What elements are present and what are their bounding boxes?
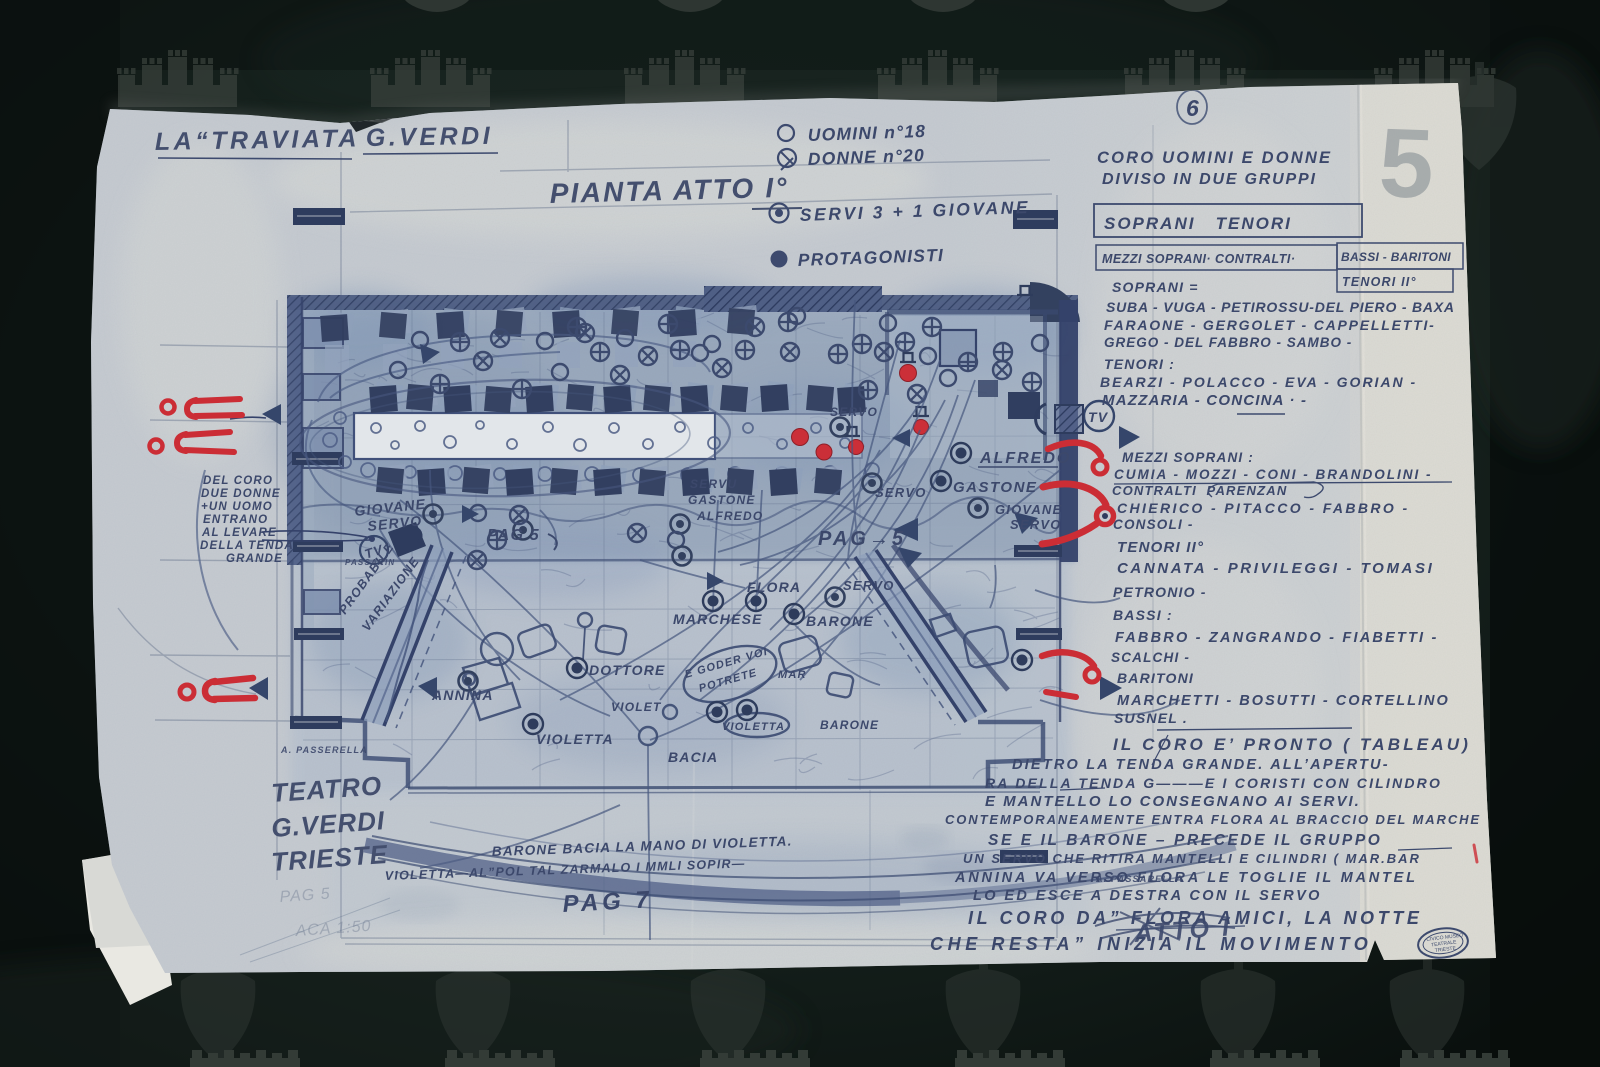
svg-text:GREGO - DEL FABBRO - SAMBO -: GREGO - DEL FABBRO - SAMBO - bbox=[1104, 335, 1352, 350]
svg-text:ANNINA VA VERSO FLORA LE TOGLI: ANNINA VA VERSO FLORA LE TOGLIE IL MANTE… bbox=[954, 870, 1418, 886]
svg-text:SUBA - VUGA - PETIROSSU-DEL PI: SUBA - VUGA - PETIROSSU-DEL PIERO - BAXA bbox=[1106, 299, 1455, 315]
svg-text:TV: TV bbox=[1088, 409, 1109, 425]
svg-text:FLORA: FLORA bbox=[747, 579, 801, 595]
svg-text:ENTRANO: ENTRANO bbox=[203, 514, 268, 526]
svg-text:CHIERICO - PITACCO - FABBRO -: CHIERICO - PITACCO - FABBRO - bbox=[1117, 500, 1410, 516]
svg-text:DIETRO LA TENDA GRANDE. ALL’A: DIETRO LA TENDA GRANDE. ALL’APERTU- bbox=[1012, 757, 1390, 773]
svg-text:BARONE: BARONE bbox=[806, 613, 874, 629]
svg-text:MEZZI SOPRANI· CONTRALTI·: MEZZI SOPRANI· CONTRALTI· bbox=[1102, 252, 1296, 266]
svg-text:SERVO: SERVO bbox=[1010, 517, 1062, 532]
svg-text:TENORI :: TENORI : bbox=[1104, 356, 1175, 372]
svg-text:GASTONE: GASTONE bbox=[953, 479, 1037, 496]
svg-text:ALFREDO: ALFREDO bbox=[696, 509, 763, 523]
svg-text:SOPRANI =: SOPRANI = bbox=[1112, 279, 1199, 295]
svg-text:BARITONI: BARITONI bbox=[1117, 670, 1194, 686]
svg-text:CONSOLI -: CONSOLI - bbox=[1113, 517, 1194, 532]
svg-text:+UN UOMO: +UN UOMO bbox=[201, 501, 273, 513]
svg-text:VIOLETTA: VIOLETTA bbox=[722, 721, 785, 733]
svg-text:UN SERVO CHE RITIRA MANTELLI E: UN SERVO CHE RITIRA MANTELLI E CILINDRI … bbox=[963, 851, 1421, 866]
svg-text:SE E IL BARONE – PRECEDE IL GR: SE E IL BARONE – PRECEDE IL GRUPPO bbox=[988, 832, 1382, 849]
svg-text:MARCHESE: MARCHESE bbox=[673, 611, 763, 627]
svg-text:BEARZI - POLACCO - EVA - GORIA: BEARZI - POLACCO - EVA - GORIAN - bbox=[1100, 374, 1417, 390]
svg-text:PAG 5: PAG 5 bbox=[487, 527, 540, 544]
svg-text:RA DELLA TENDA G———E I CORISTI: RA DELLA TENDA G———E I CORISTI CON CILIN… bbox=[985, 775, 1442, 791]
svg-text:CORO UOMINI E DONNE: CORO UOMINI E DONNE bbox=[1097, 149, 1332, 167]
svg-text:BASSI - BARITONI: BASSI - BARITONI bbox=[1341, 250, 1451, 264]
svg-text:MEZZI SOPRANI :: MEZZI SOPRANI : bbox=[1122, 450, 1254, 465]
svg-text:MARCHETTI - BOSUTTI - CORTELLI: MARCHETTI - BOSUTTI - CORTELLINO bbox=[1117, 693, 1450, 709]
svg-text:SUSNEL .: SUSNEL . bbox=[1114, 710, 1188, 726]
svg-text:BASSI :: BASSI : bbox=[1113, 607, 1173, 623]
svg-text:TENORI II°: TENORI II° bbox=[1342, 275, 1417, 289]
svg-text:VIOLETTA: VIOLETTA bbox=[536, 731, 614, 747]
svg-text:BARONE: BARONE bbox=[820, 718, 879, 732]
svg-text:SERVO: SERVO bbox=[875, 485, 927, 500]
svg-text:E MANTELLO LO CONSEGNANO AI SE: E MANTELLO LO CONSEGNANO AI SERVI. bbox=[985, 793, 1361, 810]
svg-text:CONTEMPORANEAMENTE ENTRA FLORA: CONTEMPORANEAMENTE ENTRA FLORA AL BRACCI… bbox=[945, 812, 1481, 827]
svg-text:ANNINA: ANNINA bbox=[431, 687, 494, 703]
svg-text:PIANTA ATTO I°: PIANTA ATTO I° bbox=[549, 172, 789, 209]
svg-text:5: 5 bbox=[1377, 107, 1435, 219]
svg-text:AL LEVARE: AL LEVARE bbox=[201, 527, 277, 539]
svg-text:MAR: MAR bbox=[778, 669, 807, 681]
svg-text:SERVO: SERVO bbox=[830, 405, 878, 419]
svg-text:GIOVANE: GIOVANE bbox=[995, 502, 1062, 517]
svg-text:G.VERDI: G.VERDI bbox=[366, 122, 494, 152]
svg-text:CONTRALTI PARENZAN: CONTRALTI PARENZAN bbox=[1112, 483, 1287, 498]
svg-text:SERVO: SERVO bbox=[843, 578, 895, 593]
svg-text:DONNE n°20: DONNE n°20 bbox=[807, 145, 925, 169]
svg-text:FARAONE - GERGOLET - CAPPELLET: FARAONE - GERGOLET - CAPPELLETTI- bbox=[1104, 317, 1436, 333]
svg-text:MAZZARIA - CONCINA · -: MAZZARIA - CONCINA · - bbox=[1102, 392, 1307, 409]
svg-text:6: 6 bbox=[1186, 95, 1200, 121]
svg-text:A. PASSERELLA: A. PASSERELLA bbox=[280, 745, 368, 755]
svg-text:PAG 5: PAG 5 bbox=[279, 885, 331, 906]
svg-text:DUE DONNE: DUE DONNE bbox=[201, 488, 281, 500]
svg-text:FABBRO - ZANGRANDO - FIABETTI: FABBRO - ZANGRANDO - FIABETTI - bbox=[1115, 630, 1439, 646]
svg-text:LA“TRAVIATA: LA“TRAVIATA bbox=[155, 124, 361, 156]
svg-text:PETRONIO -: PETRONIO - bbox=[1113, 584, 1207, 600]
svg-text:SOPRANI TENORI: SOPRANI TENORI bbox=[1104, 214, 1292, 233]
svg-text:SERVU: SERVU bbox=[690, 477, 737, 491]
svg-text:BACIA: BACIA bbox=[668, 749, 718, 765]
svg-text:VIOLET: VIOLET bbox=[611, 700, 662, 714]
svg-text:DIVISO IN DUE GRUPPI: DIVISO IN DUE GRUPPI bbox=[1102, 171, 1317, 188]
svg-text:DOTTORE: DOTTORE bbox=[589, 662, 666, 678]
svg-text:GRANDE: GRANDE bbox=[226, 553, 283, 565]
svg-text:TENORI II°: TENORI II° bbox=[1117, 539, 1204, 556]
svg-text:ALFREDO: ALFREDO bbox=[979, 450, 1071, 467]
svg-text:CANNATA - PRIVILEGGI - TOMASI: CANNATA - PRIVILEGGI - TOMASI bbox=[1117, 560, 1434, 577]
svg-text:DEL CORO: DEL CORO bbox=[203, 475, 273, 487]
svg-text:UOMINI n°18: UOMINI n°18 bbox=[807, 121, 926, 145]
svg-text:SCALCHI -: SCALCHI - bbox=[1111, 650, 1190, 665]
svg-text:CUMIA - MOZZI - CONI - BRANDOL: CUMIA - MOZZI - CONI - BRANDOLINI - bbox=[1114, 467, 1432, 482]
svg-text:PAG→5: PAG→5 bbox=[818, 528, 906, 550]
svg-text:PAG 7: PAG 7 bbox=[562, 886, 654, 918]
svg-text:LO ED ESCE A DESTRA CON IL SER: LO ED ESCE A DESTRA CON IL SERVO bbox=[973, 888, 1322, 904]
svg-text:DELLA TENDA: DELLA TENDA bbox=[200, 540, 294, 552]
svg-text:GASTONE: GASTONE bbox=[688, 493, 756, 507]
svg-text:PASSARIN: PASSARIN bbox=[345, 558, 395, 567]
